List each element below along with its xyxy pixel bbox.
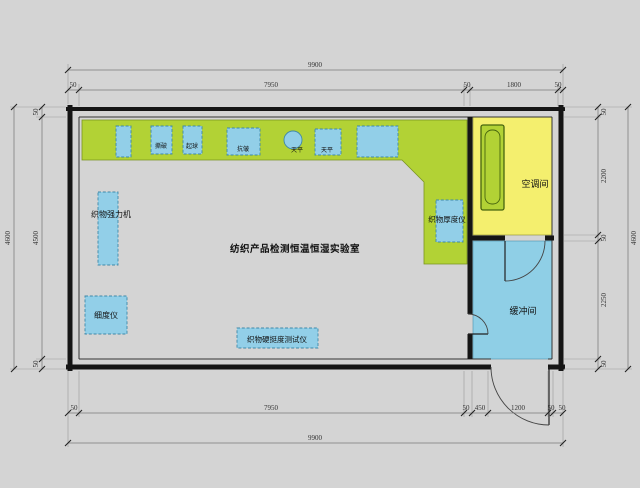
dim-top-seg-4: 50 bbox=[555, 81, 563, 89]
dim-bottom-seg-0: 50 bbox=[71, 404, 79, 412]
bench-label-balance-2: 天平 bbox=[321, 147, 333, 154]
strength-tester-box bbox=[98, 192, 118, 265]
dim-top-seg-3: 1800 bbox=[507, 81, 522, 89]
bench-box-1 bbox=[116, 126, 131, 157]
dim-bottom-seg-2: 50 bbox=[463, 404, 471, 412]
dim-left-seg-2: 50 bbox=[32, 360, 40, 368]
dim-bottom-overall: 9900 bbox=[308, 434, 323, 442]
buffer-room-label: 缓冲间 bbox=[509, 305, 536, 317]
fineness-tester-label: 细度仪 bbox=[94, 310, 118, 320]
bench-box-2 bbox=[357, 126, 398, 157]
dim-bottom-seg-5: 50 bbox=[548, 404, 556, 412]
stiffness-tester-label: 织物硬挺度测试仪 bbox=[247, 334, 307, 344]
dim-top-overall: 9900 bbox=[308, 61, 323, 69]
ac-unit-body bbox=[481, 125, 504, 210]
strength-tester-label: 织物强力机 bbox=[91, 209, 131, 219]
dim-bottom-seg-1: 7950 bbox=[264, 404, 279, 412]
bench-label-wrinkle: 抗皱 bbox=[237, 145, 249, 153]
ac-room-label: 空调间 bbox=[521, 178, 548, 190]
dim-left-seg-1: 4500 bbox=[32, 231, 40, 246]
dim-right-seg-3: 2250 bbox=[600, 293, 608, 308]
dim-right-outer: 4600 bbox=[630, 231, 638, 246]
dim-top-seg-0: 50 bbox=[70, 81, 78, 89]
dim-top-seg-1: 7950 bbox=[264, 81, 279, 89]
bench-label-tear: 撕破 bbox=[155, 142, 167, 150]
dim-right-seg-1: 2200 bbox=[600, 169, 608, 184]
thickness-tester-label: 织物厚度仪 bbox=[428, 214, 466, 224]
dim-left-seg-0: 50 bbox=[32, 108, 40, 116]
dim-bottom-seg-6: 50 bbox=[559, 404, 567, 412]
floor-plan-drawing: 9900 50 7950 50 1800 50 50 7950 50 450 1… bbox=[0, 0, 640, 488]
dim-right-seg-4: 50 bbox=[600, 360, 608, 368]
dim-right-seg-2: 50 bbox=[600, 234, 608, 242]
bench-label-pilling: 起球 bbox=[186, 142, 198, 150]
dim-bottom-seg-4: 1200 bbox=[511, 404, 526, 412]
dim-bottom-seg-3: 450 bbox=[475, 404, 486, 412]
dim-top-seg-2: 50 bbox=[464, 81, 472, 89]
bench-label-balance-1: 天平 bbox=[291, 147, 303, 154]
lab-room-label: 纺织产品检测恒温恒湿实验室 bbox=[230, 243, 360, 255]
dim-right-seg-0: 50 bbox=[600, 108, 608, 116]
floor-plan-canvas: 9900 50 7950 50 1800 50 50 7950 50 450 1… bbox=[0, 0, 640, 488]
dim-left-outer: 4600 bbox=[4, 231, 12, 246]
air-conditioner-unit bbox=[481, 125, 504, 210]
buffer-room-floor bbox=[473, 241, 552, 359]
